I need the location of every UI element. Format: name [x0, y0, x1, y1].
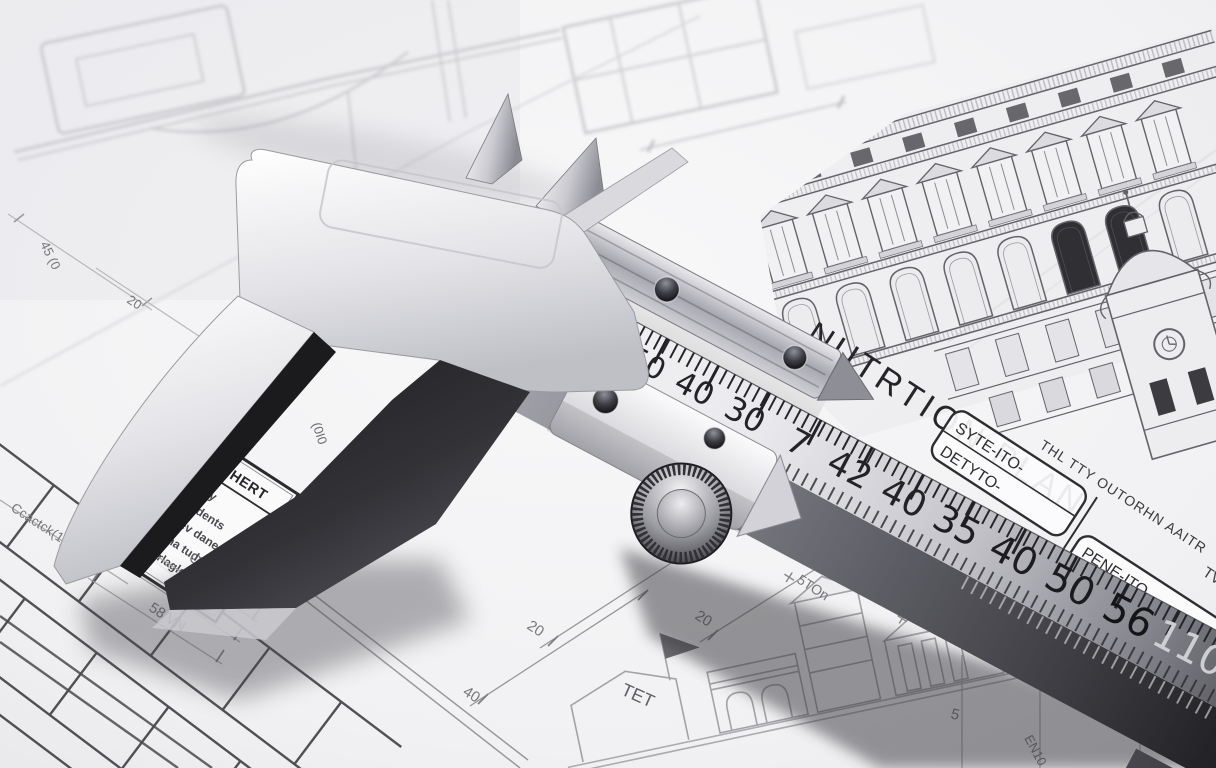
blueprint-caliper-photo: 45 (0 20 NOCNHERT Nimrtay etomcdents Ccs…: [0, 0, 1216, 768]
scene-svg: 45 (0 20 NOCNHERT Nimrtay etomcdents Ccs…: [0, 0, 1216, 768]
